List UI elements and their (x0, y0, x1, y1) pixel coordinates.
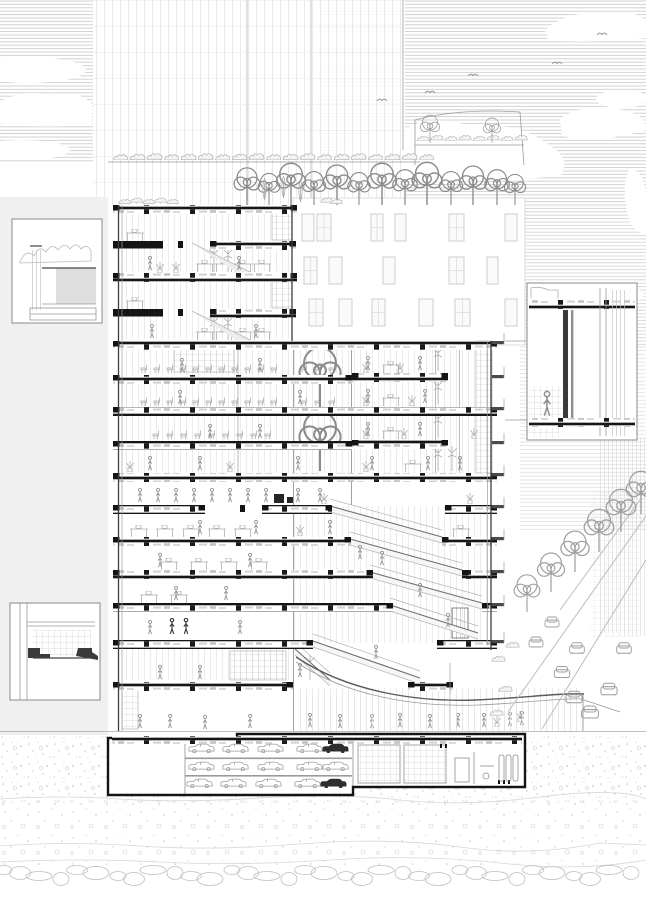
detail-box-bottom-left (10, 603, 100, 700)
pebble-band (0, 866, 639, 886)
architectural-section-page (0, 0, 646, 913)
section-drawing (0, 0, 646, 913)
right-balcony-stubs (492, 333, 504, 643)
background-building (293, 198, 525, 345)
detail-box-top-left (12, 219, 102, 323)
glass-tower-background (93, 0, 405, 205)
basement-parking (108, 734, 525, 795)
